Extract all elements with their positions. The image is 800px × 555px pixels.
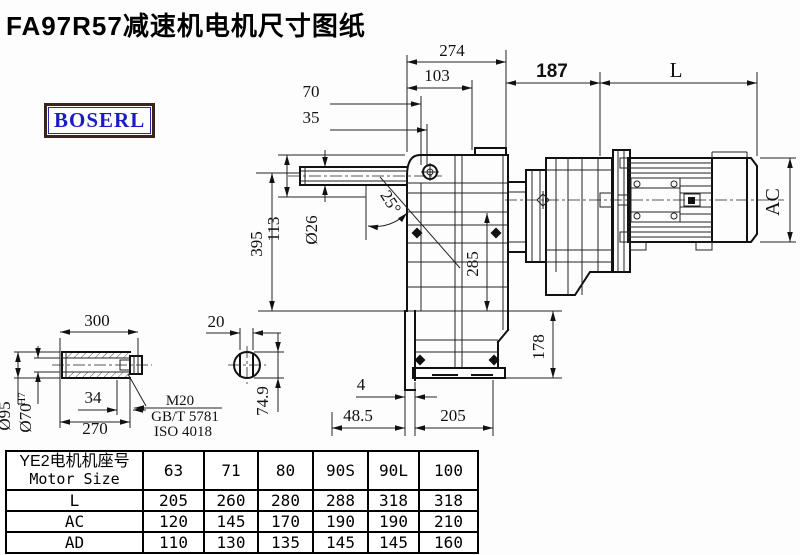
- bottom-dimension-lines: 4 48.5 205: [332, 375, 493, 436]
- dim-AC: AC: [762, 188, 784, 216]
- dim-270: 270: [82, 419, 108, 438]
- dim-178: 178: [529, 334, 548, 360]
- table-header-motor-size: YE2电机机座号 Motor Size: [6, 451, 143, 490]
- table-col-header: 90L: [368, 451, 419, 490]
- dim-L: L: [670, 58, 683, 82]
- table-cell: 120: [143, 511, 204, 532]
- dim-205: 205: [440, 406, 466, 425]
- dim-300: 300: [84, 311, 110, 330]
- motor-size-table: YE2电机机座号 Motor Size 63 71 80 90S 90L 100…: [5, 450, 479, 554]
- ac-dimension: AC: [760, 158, 796, 242]
- row-label-AC: AC: [6, 511, 143, 532]
- dim-395: 395: [247, 231, 266, 257]
- table-row: L 205 260 280 288 318 318: [6, 490, 478, 511]
- hollow-shaft-detail-view: 300 Ø95 Ø70 H7 34 270 M20 GB/T 5781 ISO …: [0, 311, 222, 440]
- table-row: AD 110 130 135 145 145 160: [6, 532, 478, 553]
- r57-gear-unit: [508, 158, 612, 295]
- table-col-header: 63: [143, 451, 204, 490]
- output-shaft-bar: [288, 167, 442, 185]
- dim-dia95: Ø95: [0, 401, 14, 430]
- dim-4: 4: [357, 375, 366, 394]
- table-cell: 318: [419, 490, 478, 511]
- table-col-header: 80: [258, 451, 313, 490]
- dim-187: 187: [536, 61, 568, 82]
- row-label-AD: AD: [6, 532, 143, 553]
- standard-gbt-label: GB/T 5781: [151, 409, 219, 425]
- dim-48-5: 48.5: [343, 406, 373, 425]
- table-col-header: 71: [204, 451, 258, 490]
- table-cell: 288: [313, 490, 368, 511]
- dim-dia26: Ø26: [302, 215, 321, 244]
- dim-dia70-tolerance: H7: [16, 392, 28, 406]
- table-cell: 145: [368, 532, 419, 553]
- top-dimension-lines: 274 103 70 35 187 L: [303, 41, 758, 165]
- row-label-L: L: [6, 490, 143, 511]
- table-cell: 190: [368, 511, 419, 532]
- dim-103: 103: [424, 66, 450, 85]
- table-cell: 135: [258, 532, 313, 553]
- dim-70: 70: [303, 82, 320, 101]
- table-cell: 280: [258, 490, 313, 511]
- motor-size-label-en: Motor Size: [7, 471, 142, 488]
- dim-74-9: 74.9: [253, 386, 272, 416]
- table-cell: 170: [258, 511, 313, 532]
- standard-iso-label: ISO 4018: [154, 424, 212, 440]
- table-cell: 318: [368, 490, 419, 511]
- drawing-sheet: FA97R57减速机电机尺寸图纸 BOSERL: [0, 0, 800, 555]
- dim-dia70: Ø70: [16, 403, 35, 432]
- dim-20: 20: [208, 312, 225, 331]
- table-col-header: 100: [419, 451, 478, 490]
- table-cell: 110: [143, 532, 204, 553]
- table-cell: 160: [419, 532, 478, 553]
- dim-285: 285: [463, 251, 482, 277]
- table-cell: 205: [143, 490, 204, 511]
- table-cell: 145: [204, 511, 258, 532]
- dim-113: 113: [264, 217, 283, 242]
- table-cell: 190: [313, 511, 368, 532]
- table-row: AC 120 145 170 190 190 210: [6, 511, 478, 532]
- thread-spec-label: M20: [166, 393, 194, 409]
- dim-35: 35: [303, 108, 320, 127]
- table-header-row: YE2电机机座号 Motor Size 63 71 80 90S 90L 100: [6, 451, 478, 490]
- dim-angle-25: 25°: [376, 187, 405, 217]
- shaft-end-section-view: 20 74.9: [206, 312, 284, 416]
- dim-274: 274: [439, 41, 465, 60]
- table-col-header: 90S: [313, 451, 368, 490]
- table-cell: 260: [204, 490, 258, 511]
- table-cell: 145: [313, 532, 368, 553]
- table-cell: 130: [204, 532, 258, 553]
- table-cell: 210: [419, 511, 478, 532]
- motor-size-label-cn: YE2电机机座号: [7, 453, 142, 471]
- dim-34: 34: [85, 388, 103, 407]
